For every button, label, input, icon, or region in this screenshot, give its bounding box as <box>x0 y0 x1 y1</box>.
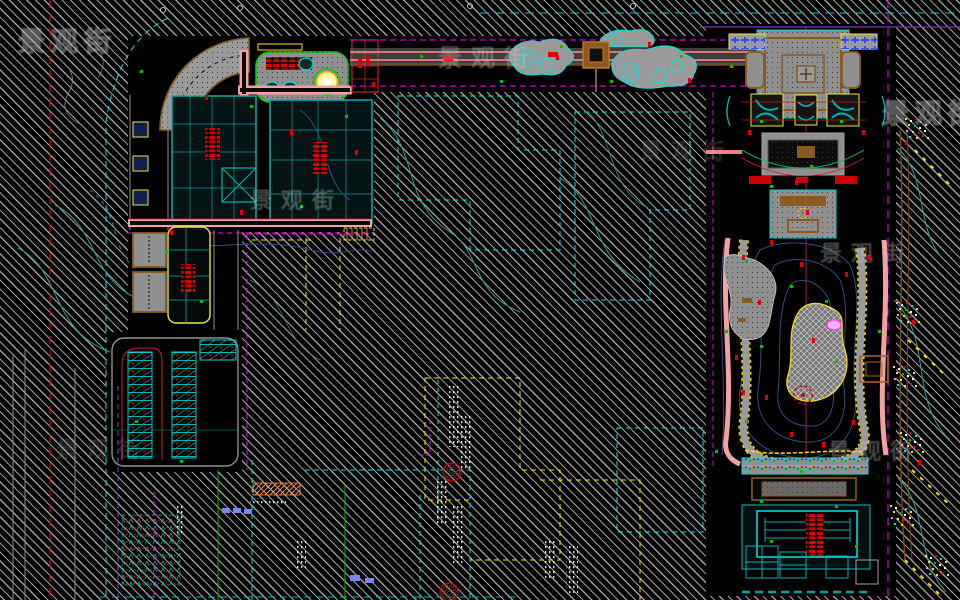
parking-stalls-west <box>128 352 152 458</box>
mosaic-walk-and-pergola <box>742 458 868 500</box>
pond-island <box>787 303 847 401</box>
orange-hatch-plot <box>253 483 300 495</box>
cad-canvas: 景观街 景观街 景观街 景观街 景观街 景观街 景观街 景观街 <box>0 0 960 600</box>
bench <box>749 176 771 184</box>
survey-marks <box>161 4 636 13</box>
tea-pavilion <box>770 190 836 238</box>
building-1-label <box>205 128 220 160</box>
red-hatch-circle <box>440 583 458 600</box>
building-2-label <box>313 142 328 174</box>
street-rockery-west <box>509 39 573 75</box>
pool-area-label <box>806 514 823 556</box>
red-hatch-circle <box>443 463 461 481</box>
car-symbol <box>443 56 453 62</box>
site-plan-drawing <box>0 0 960 600</box>
teal-hatch-plot <box>122 515 180 585</box>
commercial-label <box>181 264 195 292</box>
bench <box>835 176 857 184</box>
parking-stalls-east <box>172 352 196 458</box>
